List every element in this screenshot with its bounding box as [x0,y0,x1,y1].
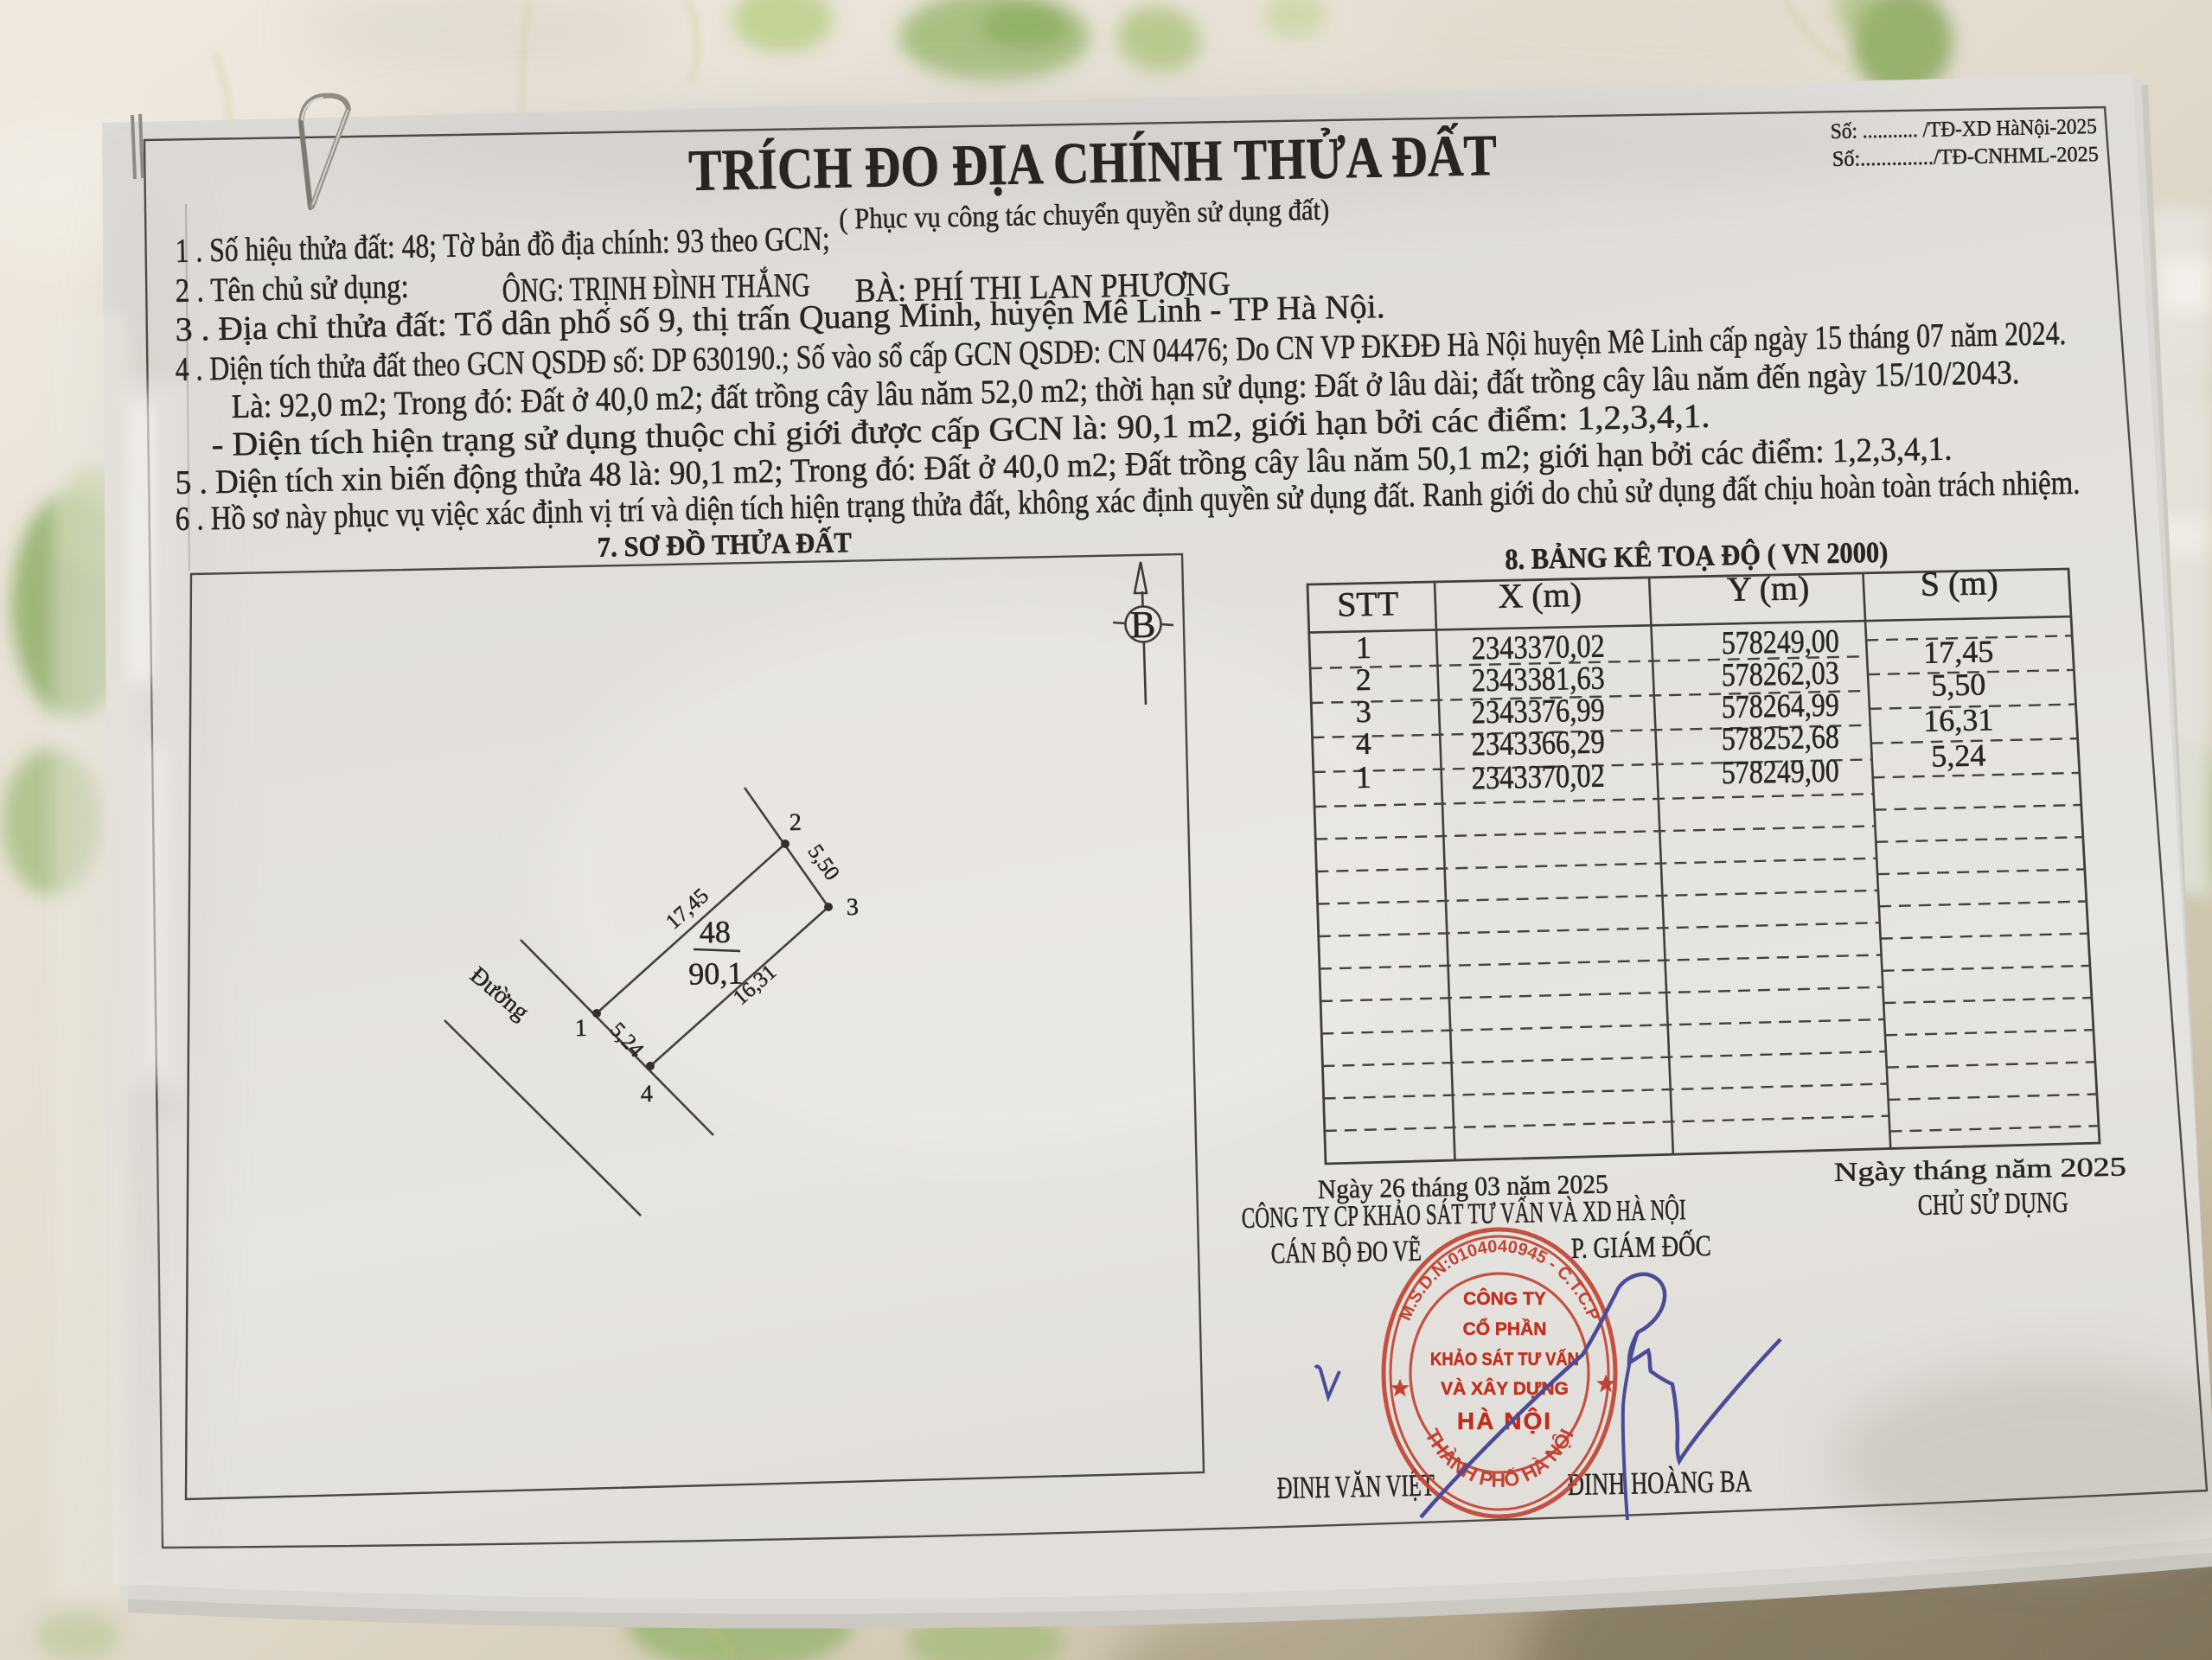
svg-text:48: 48 [699,915,731,950]
svg-text:578252,68: 578252,68 [1721,719,1839,758]
svg-text:CÔNG TY: CÔNG TY [1463,1288,1546,1309]
svg-text:ĐINH VĂN VIỆT: ĐINH VĂN VIỆT [1276,1468,1435,1505]
svg-text:1: 1 [1355,760,1371,795]
svg-text:ĐINH HOÀNG BA: ĐINH HOÀNG BA [1567,1464,1752,1502]
svg-text:2 . Tên chủ sử dụng:: 2 . Tên chủ sử dụng: [175,268,409,310]
svg-text:5,24: 5,24 [1931,737,1986,773]
svg-text:4: 4 [641,1081,654,1108]
svg-text:17,45: 17,45 [1923,634,1994,670]
svg-text:1: 1 [575,1015,588,1042]
svg-text:578249,00: 578249,00 [1721,753,1839,792]
svg-text:X (m): X (m) [1498,575,1582,616]
svg-text:2343366,29: 2343366,29 [1471,725,1605,763]
svg-text:Y (m): Y (m) [1727,568,1810,609]
svg-text:B: B [1130,603,1156,647]
svg-text:VÀ XÂY DỰNG: VÀ XÂY DỰNG [1441,1378,1569,1399]
svg-text:5,50: 5,50 [1931,667,1986,702]
svg-text:4: 4 [1355,726,1371,761]
svg-text:STT: STT [1337,584,1399,623]
svg-text:2343370,02: 2343370,02 [1471,758,1605,797]
svg-text:CỔ PHẦN: CỔ PHẦN [1463,1318,1547,1339]
svg-text:1: 1 [1355,630,1371,665]
svg-text:Ngày tháng năm: Ngày tháng năm 2025 [1833,1152,2126,1187]
svg-text:S (m): S (m) [1920,563,1998,603]
svg-text:2: 2 [790,809,802,836]
svg-text:CHỦ SỬ DỤNG: CHỦ SỬ DỤNG [1917,1187,2068,1222]
svg-text:CÁN BỘ ĐO VẼ: CÁN BỘ ĐO VẼ [1270,1235,1422,1270]
svg-text:16,31: 16,31 [1923,702,1994,738]
svg-text:3: 3 [1355,694,1371,729]
svg-text:P. GIÁM ĐỐC: P. GIÁM ĐỐC [1570,1229,1711,1265]
svg-text:3: 3 [847,894,860,921]
svg-text:2: 2 [1355,662,1371,697]
svg-text:KHẢO SÁT TƯ VẤN: KHẢO SÁT TƯ VẤN [1430,1350,1579,1369]
